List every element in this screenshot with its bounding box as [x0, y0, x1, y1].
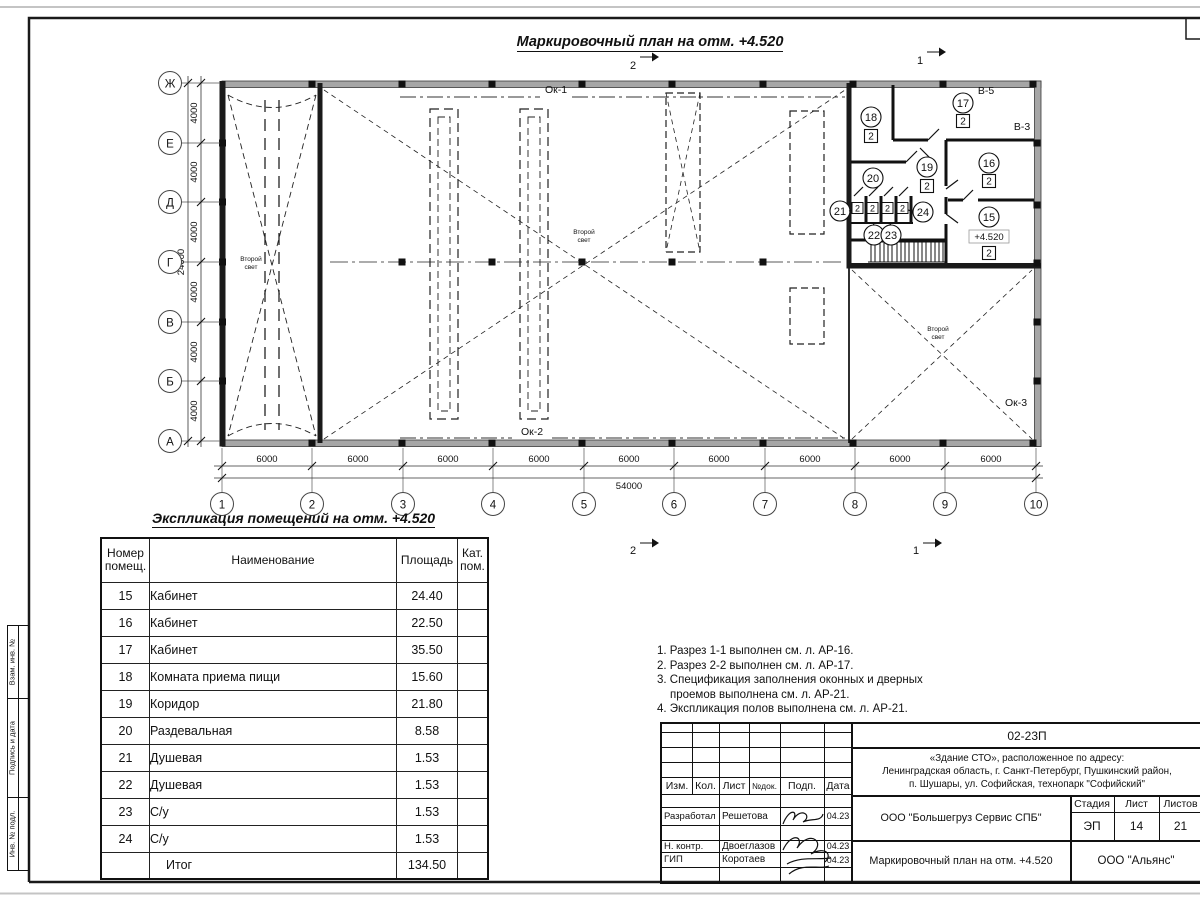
cell-category [458, 690, 489, 717]
window-label-ok1: Ок-1 [545, 84, 567, 96]
table-row: 15Кабинет24.40 [101, 582, 488, 609]
explication-title: Экспликация помещений на отм. +4.520 [152, 510, 435, 528]
second-light-label-1: Второй свет [240, 255, 262, 271]
svg-text:2: 2 [960, 117, 966, 128]
room-bubble-15: 15 [979, 207, 999, 227]
svg-text:Б: Б [166, 377, 174, 389]
table-row: 18Комната приема пищи15.60 [101, 663, 488, 690]
sheets-label: Листов [1159, 795, 1200, 812]
svg-text:В: В [166, 318, 174, 330]
col-header-list: Лист [719, 777, 749, 794]
dim-labels-6000: 6000 6000 6000 6000 6000 6000 6000 6000 … [256, 454, 1001, 465]
role-ncontrol: Н. контр. [664, 840, 719, 852]
svg-text:4000: 4000 [189, 341, 200, 362]
svg-text:9: 9 [942, 500, 948, 512]
col-header-izm: Изм. [662, 777, 692, 794]
sheet-number: 14 [1114, 812, 1159, 840]
svg-text:2: 2 [900, 204, 905, 214]
elevation-mark: +4.520 [969, 230, 1009, 243]
section-mark-2-bottom: 2 [630, 539, 659, 558]
note-line: проемов выполнена см. л. АР-21. [657, 688, 997, 703]
svg-text:6000: 6000 [799, 454, 820, 465]
svg-text:4000: 4000 [189, 221, 200, 242]
col-header-ndok: №док. [749, 777, 780, 794]
section-marks: 2 1 2 1 [630, 48, 946, 558]
plan-labels: В-5 В-3 Ок-1 Ок-2 Ок-3 Второй свет Второ… [240, 84, 1030, 438]
svg-text:17: 17 [957, 98, 969, 110]
svg-text:6000: 6000 [618, 454, 639, 465]
svg-text:24: 24 [917, 207, 929, 219]
contractor-company: ООО "Большегруз Сервис СПБ" [852, 795, 1070, 840]
room-bubble-18: 18 [861, 107, 881, 127]
dimensions-bottom: 6000 6000 6000 6000 6000 6000 6000 6000 … [211, 448, 1048, 516]
window-label-ok2: Ок-2 [521, 426, 543, 438]
svg-text:6000: 6000 [347, 454, 368, 465]
frame-label-vzam: Взам. инв. № [7, 625, 17, 698]
svg-text:6000: 6000 [437, 454, 458, 465]
signature-developer [783, 812, 823, 824]
svg-text:19: 19 [921, 162, 933, 174]
table-total-row: Итог134.50 [101, 852, 488, 879]
svg-text:10: 10 [1030, 500, 1043, 512]
role-developer: Разработал [664, 807, 719, 825]
svg-text:5: 5 [581, 500, 587, 512]
room-bubble-24: 24 [913, 202, 933, 222]
svg-text:21: 21 [834, 206, 846, 218]
table-row: 24С/у1.53 [101, 825, 488, 852]
svg-text:2: 2 [870, 204, 875, 214]
second-light-label-3: Второй свет [927, 325, 949, 341]
name-developer: Решетова [722, 807, 780, 825]
cell-category [458, 663, 489, 690]
cell-category [458, 744, 489, 771]
header-room-name: Наименование [150, 538, 397, 582]
cell-category [458, 717, 489, 744]
svg-text:2: 2 [630, 545, 636, 557]
signatures [775, 802, 855, 884]
total-value: 134.50 [397, 852, 458, 879]
header-room-number: Номер помещ. [101, 538, 150, 582]
plan-title: Маркировочный план на отм. +4.520 [440, 33, 860, 52]
dim-label-54000: 54000 [616, 481, 642, 492]
room-bubble-21: 21 [830, 201, 850, 221]
frame-label-podpis: Подпись и дата [7, 698, 17, 797]
cell-category [458, 582, 489, 609]
svg-text:Второй: Второй [240, 255, 262, 263]
note-line: 3. Спецификация заполнения оконных и две… [657, 673, 997, 688]
sheets-total: 21 [1159, 812, 1200, 840]
signature-gip [783, 838, 831, 874]
note-line: 4. Экспликация полов выполнена см. л. АР… [657, 702, 997, 717]
svg-text:Второй: Второй [573, 228, 595, 236]
svg-text:8: 8 [852, 500, 858, 512]
svg-text:2: 2 [855, 204, 860, 214]
total-label: Итог [150, 852, 397, 879]
svg-text:6000: 6000 [256, 454, 277, 465]
design-org: ООО "Альянс" [1070, 840, 1200, 882]
vent-label-v3: В-3 [1014, 121, 1031, 133]
svg-text:20: 20 [867, 173, 879, 185]
note-line: 2. Разрез 2-2 выполнен см. л. АР-17. [657, 659, 997, 674]
svg-text:Г: Г [167, 258, 174, 270]
stage-value: ЭП [1070, 812, 1114, 840]
room-marks: 15 16 17 18 19 20 21 22 23 24 2 2 2 2 2 … [830, 93, 1009, 260]
window-band-lines [400, 97, 845, 438]
object-address: «Здание СТО», расположенное по адресу: Л… [852, 748, 1200, 794]
note-line: 1. Разрез 1-1 выполнен см. л. АР-16. [657, 644, 997, 659]
room-bubble-23: 23 [881, 225, 901, 245]
section-mark-2-top: 2 [630, 53, 659, 73]
table-header-row: Номер помещ. Наименование Площадь Кат. п… [101, 538, 488, 582]
svg-text:6000: 6000 [889, 454, 910, 465]
table-row: 22Душевая1.53 [101, 771, 488, 798]
dimensions-left: 4000 4000 4000 4000 4000 4000 24000 Ж Е … [159, 72, 221, 453]
svg-text:2: 2 [885, 204, 890, 214]
svg-text:Ж: Ж [165, 79, 176, 91]
cell-category [458, 798, 489, 825]
axis-bubbles-left: Ж Е Д Г В Б А [159, 72, 182, 453]
doc-code: 02-23П [852, 724, 1200, 747]
svg-text:1: 1 [913, 545, 919, 557]
vent-label-v5: В-5 [978, 85, 995, 97]
room-bubble-20: 20 [863, 168, 883, 188]
svg-text:4000: 4000 [189, 102, 200, 123]
header-room-area: Площадь [397, 538, 458, 582]
room-bubble-17: 17 [953, 93, 973, 113]
svg-text:2: 2 [986, 249, 992, 260]
cell-category [458, 636, 489, 663]
svg-text:2: 2 [924, 182, 930, 193]
svg-text:6000: 6000 [528, 454, 549, 465]
svg-text:4000: 4000 [189, 281, 200, 302]
svg-text:4000: 4000 [189, 161, 200, 182]
svg-text:А: А [166, 437, 174, 449]
drawing-name: Маркировочный план на отм. +4.520 [852, 840, 1070, 882]
table-row: 23С/у1.53 [101, 798, 488, 825]
sheet-label: Лист [1114, 795, 1159, 812]
notes-block: 1. Разрез 1-1 выполнен см. л. АР-16. 2. … [657, 644, 997, 717]
window-label-ok3: Ок-3 [1005, 397, 1027, 409]
svg-text:+4.520: +4.520 [974, 232, 1003, 243]
svg-text:2: 2 [986, 177, 992, 188]
role-gip: ГИП [664, 852, 719, 867]
name-ncontrol: Двоеглазов [722, 840, 780, 852]
col-header-data: Дата [824, 777, 852, 794]
explication-table: Номер помещ. Наименование Площадь Кат. п… [100, 537, 489, 880]
table-row: 20Раздевальная8.58 [101, 717, 488, 744]
svg-text:4000: 4000 [189, 400, 200, 421]
room-bubble-16: 16 [979, 153, 999, 173]
title-block: 02-23П «Здание СТО», расположенное по ад… [660, 722, 1200, 884]
svg-text:свет: свет [931, 334, 944, 341]
svg-text:Е: Е [166, 139, 174, 151]
cell-category [458, 825, 489, 852]
svg-text:свет: свет [244, 264, 257, 271]
table-row: 16Кабинет22.50 [101, 609, 488, 636]
svg-text:Второй: Второй [927, 325, 949, 333]
svg-text:6: 6 [671, 500, 677, 512]
cell-category [458, 771, 489, 798]
col-header-kol: Кол. [692, 777, 719, 794]
section-mark-1-top: 1 [917, 48, 946, 68]
section-mark-1-bottom: 1 [913, 539, 942, 558]
second-light-label-2: Второй свет [573, 228, 595, 244]
svg-text:4: 4 [490, 500, 497, 512]
cell-category [458, 609, 489, 636]
svg-text:6000: 6000 [708, 454, 729, 465]
svg-text:Д: Д [166, 198, 174, 210]
col-header-podp: Подп. [780, 777, 824, 794]
svg-text:2: 2 [630, 60, 636, 72]
svg-text:1: 1 [917, 55, 923, 67]
room-bubble-19: 19 [917, 157, 937, 177]
table-row: 17Кабинет35.50 [101, 636, 488, 663]
svg-text:16: 16 [983, 158, 995, 170]
stage-label: Стадия [1070, 795, 1114, 812]
table-row: 19Коридор21.80 [101, 690, 488, 717]
table-row: 21Душевая1.53 [101, 744, 488, 771]
svg-text:22: 22 [868, 230, 880, 242]
name-gip: Коротаев [722, 852, 780, 867]
svg-text:6000: 6000 [980, 454, 1001, 465]
svg-text:18: 18 [865, 112, 877, 124]
header-room-cat: Кат. пом. [458, 538, 489, 582]
staircase [868, 242, 946, 262]
svg-text:23: 23 [885, 230, 897, 242]
svg-text:7: 7 [762, 500, 768, 512]
corner-stamp-box [1186, 18, 1200, 39]
svg-text:свет: свет [577, 237, 590, 244]
frame-label-inv: Инв. № подл. [7, 797, 17, 870]
svg-text:15: 15 [983, 212, 995, 224]
dim-ticks [218, 462, 1040, 482]
svg-text:2: 2 [868, 132, 874, 143]
